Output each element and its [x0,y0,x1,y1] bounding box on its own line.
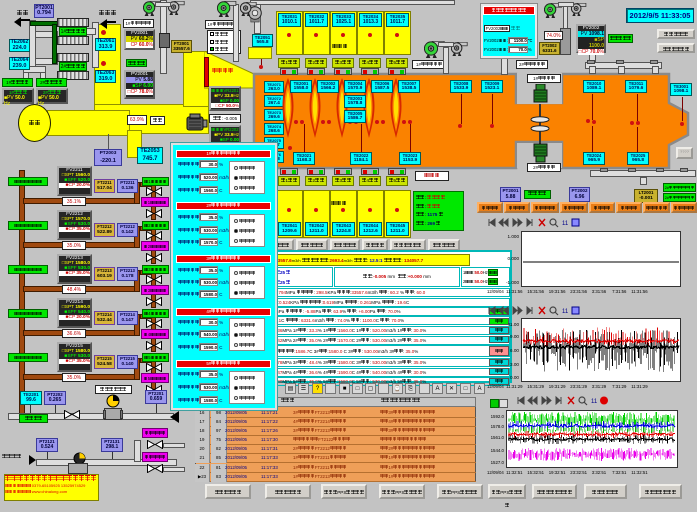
svg-text:11: 11 [562,309,569,315]
svg-text:11: 11 [591,399,598,405]
svg-text:11: 11 [562,221,569,227]
